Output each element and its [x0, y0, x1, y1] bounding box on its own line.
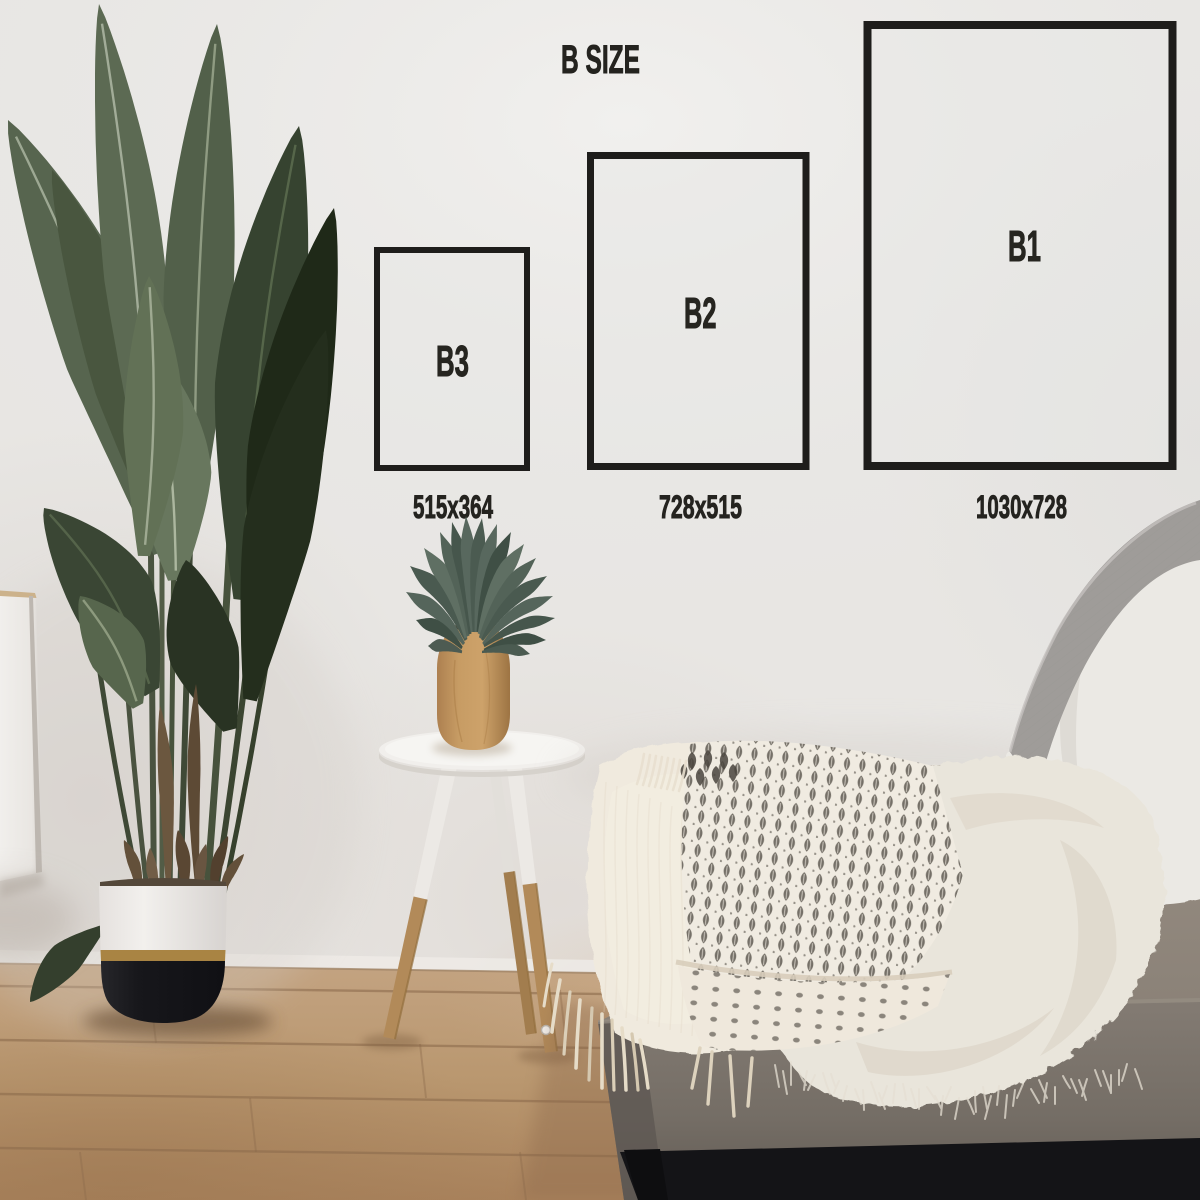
svg-text:1030x728: 1030x728 [976, 489, 1067, 525]
svg-text:B SIZE: B SIZE [561, 38, 640, 82]
svg-text:B2: B2 [684, 289, 717, 338]
svg-text:515x364: 515x364 [413, 489, 493, 525]
svg-text:B3: B3 [436, 337, 469, 386]
svg-text:B1: B1 [1008, 222, 1041, 271]
svg-text:728x515: 728x515 [659, 489, 742, 525]
